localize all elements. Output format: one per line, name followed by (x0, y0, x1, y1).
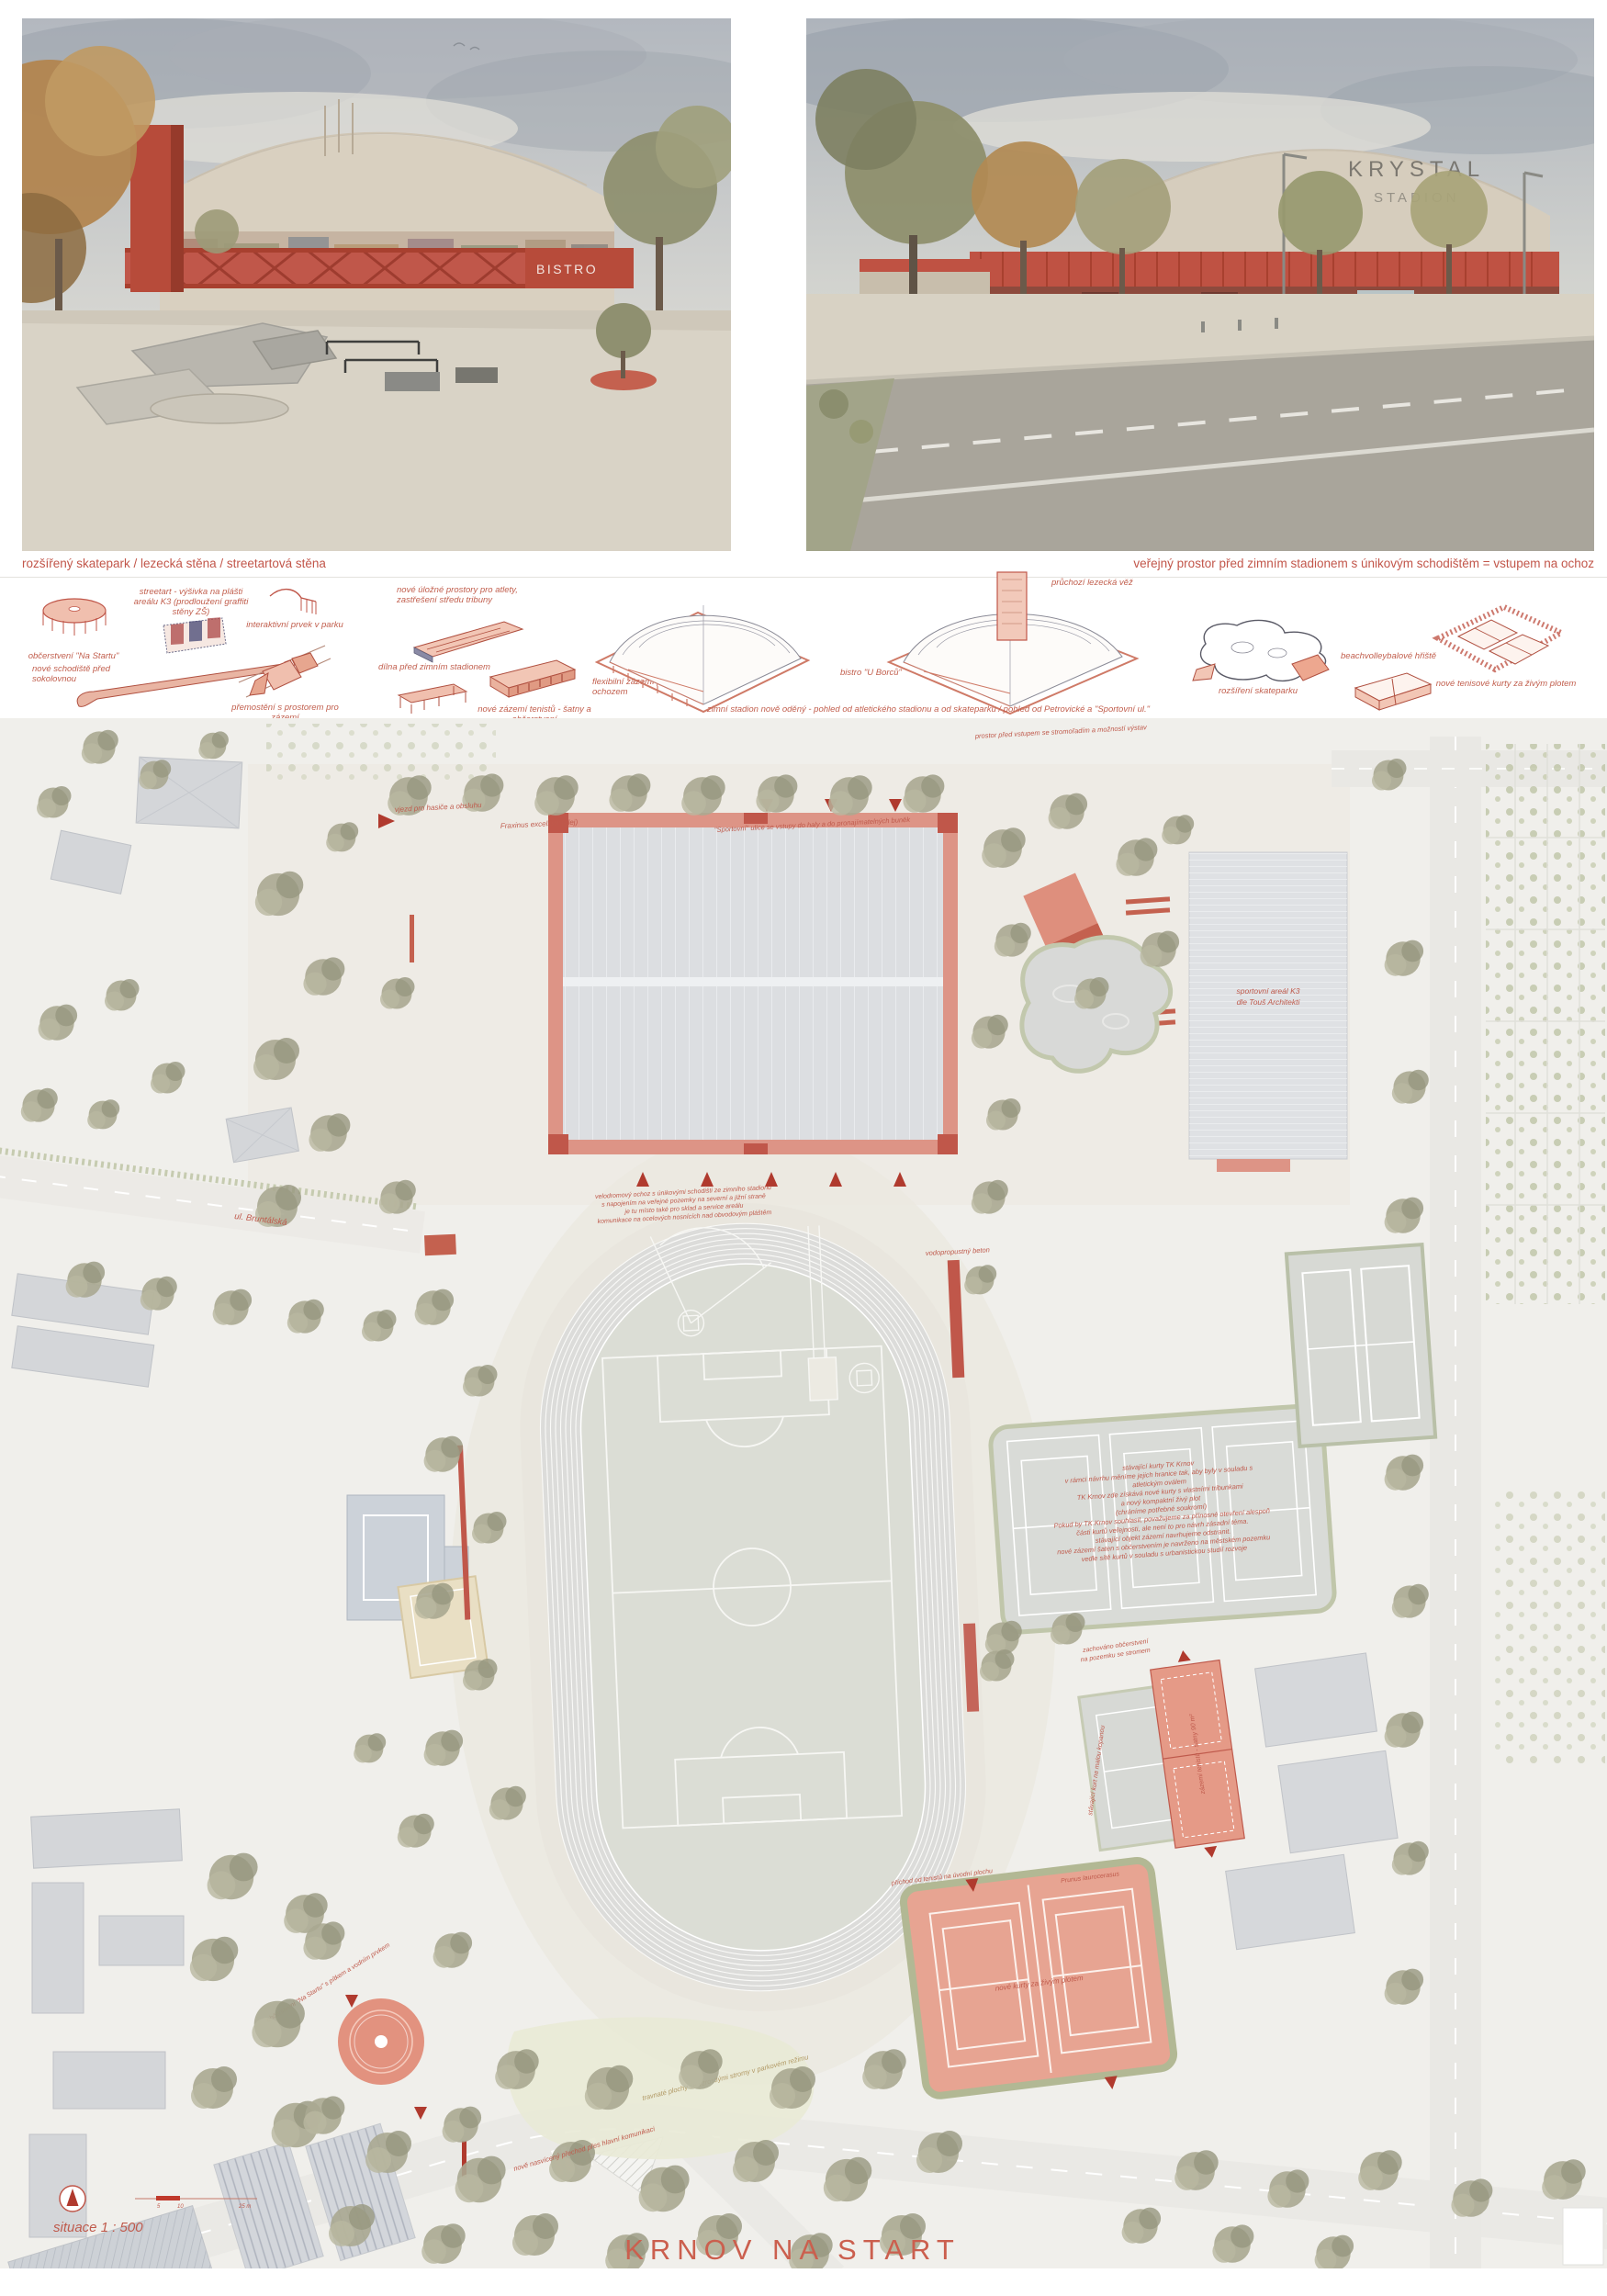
park-lawn (507, 2017, 814, 2159)
play-element-icon (264, 583, 321, 620)
bridge-icon (237, 640, 332, 703)
concrete-bench (385, 372, 440, 391)
diagram-item: dílna před zimním stadionem (378, 662, 502, 672)
diagram-label: průchozí lezecká věž (1051, 578, 1171, 588)
existing-tennis-ne (1287, 1244, 1435, 1446)
board-title: KRNOV NA START (624, 2234, 961, 2266)
diagram-play (264, 583, 321, 625)
svg-text:10: 10 (177, 2204, 184, 2210)
svg-text:25 m: 25 m (238, 2204, 251, 2210)
diagram-label: zimní stadion nově oděný - pohled od atl… (707, 704, 1276, 715)
diagram-label: streetart - výšivka na plášti areálu K3 … (127, 587, 255, 617)
render-right-image: KRYSTAL STADION (806, 18, 1594, 551)
streetart-wall-icon (158, 616, 228, 655)
bistro-signage: BISTRO (536, 262, 598, 276)
red-truss-band: BISTRO (125, 248, 634, 288)
diagram-label: nové úložné prostory pro atlety, zastřeš… (397, 585, 553, 605)
diagram-streetart (158, 616, 228, 659)
diagram-stadium-axon-a (586, 578, 815, 720)
diagram-tennis-facility (485, 657, 580, 707)
diagram-tennis-hedge (1425, 598, 1568, 683)
k3-label-1: sportovní areál K3 (1237, 986, 1300, 996)
tennis-facility-icon (485, 657, 580, 703)
render-right-stadium: KRYSTAL STADION (806, 18, 1594, 551)
diagram-item: zimní stadion nově oděný - pohled od atl… (707, 704, 1276, 715)
render-left-image: BISTRO (22, 18, 731, 551)
logo-placeholder-box (1563, 2208, 1603, 2265)
diagram-label: interaktivní prvek v parku (244, 620, 345, 630)
diagram-item: streetart - výšivka na plášti areálu K3 … (127, 587, 255, 617)
diagram-label: rozšíření skateparku (1194, 686, 1322, 696)
ice-stadium (548, 813, 958, 1154)
workshop-icon (393, 681, 470, 715)
caption-right: veřejný prostor před zimním stadionem s … (951, 557, 1594, 570)
diagram-label: dílna před zimním stadionem (378, 662, 502, 672)
siteplan: stávající kurty TK Krnov v rámci návrhu … (0, 718, 1607, 2268)
diagram-stadium-axon-b (872, 570, 1148, 722)
stadium-axon-icon (586, 578, 815, 715)
tennis-courts-icon (1425, 598, 1568, 679)
new-tennis-courts: nové kurty za živým plotem Prunus lauroc… (890, 1848, 1177, 2113)
diagram-item: nové tenisové kurty za živým plotem (1428, 679, 1584, 689)
render-left-skatepark: BISTRO (22, 18, 731, 551)
diagram-item: rozšíření skateparku (1194, 686, 1322, 696)
diagram-item: průchozí lezecká věž (1051, 578, 1171, 588)
k3-hall (1189, 852, 1347, 1172)
diagram-item: nové úložné prostory pro atlety, zastřeš… (397, 585, 553, 605)
kiosk-icon (32, 591, 117, 647)
concept-diagram-strip: občerstvení "Na Startu" nové schodiště p… (0, 577, 1607, 719)
stadium-tower-axon-icon (872, 570, 1148, 717)
compass (60, 2186, 85, 2212)
k3-label-2: dle Touš Architekti (1237, 997, 1301, 1007)
diagram-kiosk (32, 591, 117, 652)
scale-label: situace 1 : 500 (53, 2220, 143, 2235)
skatepark-blob-icon (1189, 616, 1338, 686)
caption-left: rozšířený skatepark / lezecká stěna / st… (22, 557, 665, 570)
climbing-tower (130, 125, 184, 292)
beachvolley-icon (1348, 666, 1436, 715)
diagram-workshop (393, 681, 470, 720)
competition-board: BISTRO (0, 0, 1607, 2296)
diagram-bridge (237, 640, 332, 707)
diagram-item: interaktivní prvek v parku (244, 620, 345, 630)
diagram-label: nové tenisové kurty za živým plotem (1428, 679, 1584, 689)
diagram-skatepark (1189, 616, 1338, 691)
diagram-beachvolley (1348, 666, 1436, 720)
